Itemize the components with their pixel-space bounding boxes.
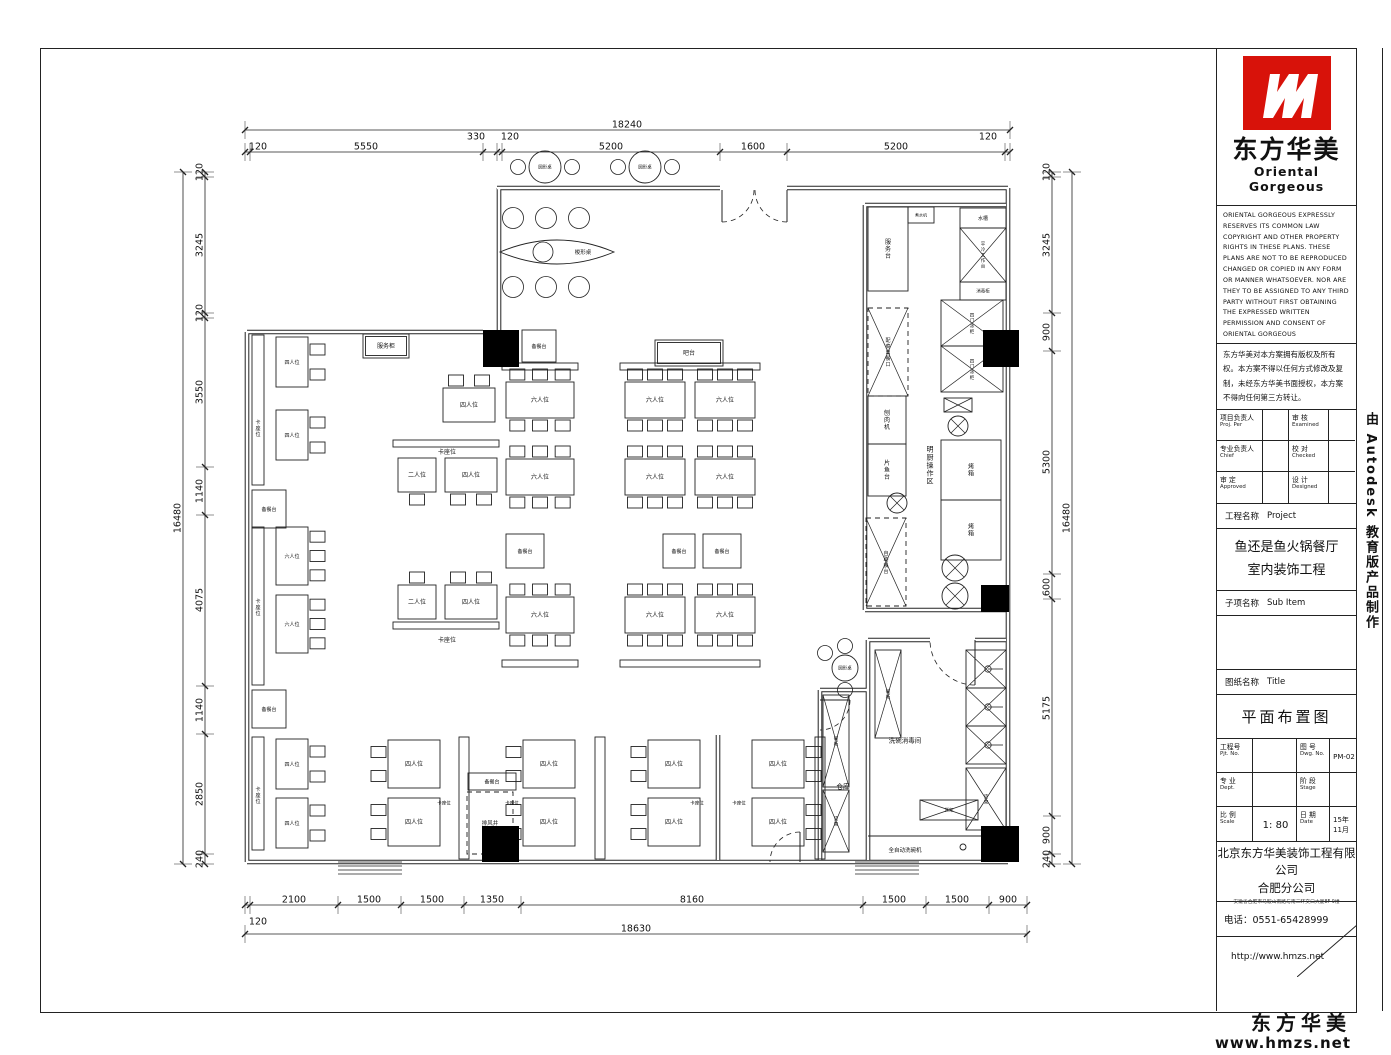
cell-date-val: 15年11月: [1330, 807, 1356, 841]
svg-text:梭形桌: 梭形桌: [575, 248, 592, 256]
personnel-table: 项目负责人Proj. Per 审 核Examined 专业负责人Chief 校 …: [1217, 410, 1356, 504]
column: [981, 585, 1009, 612]
xcirc: [942, 555, 968, 581]
cell-blank: [1329, 410, 1355, 441]
box-备餐台: 备餐台: [522, 330, 556, 362]
band: [502, 660, 578, 667]
drawing-sheet: 圆形桌圆形桌梭形桌服务柜备餐台吧台六人位六人位六人位六人位六人位六人位六人位六人…: [0, 0, 1391, 1055]
cell-dwgno: 图 号Dwg. No.: [1297, 739, 1330, 773]
svg-text:配菜出餐口: 配菜出餐口: [885, 338, 890, 368]
project-name-line1: 鱼还是鱼火锅餐厅: [1217, 537, 1356, 559]
box-片鱼台: 片鱼台: [868, 444, 906, 496]
svg-text:二人位: 二人位: [408, 598, 426, 606]
svg-text:四人位: 四人位: [284, 359, 299, 366]
cell-checked: 校 对Checked: [1289, 441, 1329, 472]
table-四人位: 四人位: [752, 798, 821, 846]
xcirc: [942, 583, 968, 609]
company-branch: 合肥分公司: [1217, 880, 1356, 896]
svg-text:四人位: 四人位: [284, 761, 299, 768]
floor-plan: 圆形桌圆形桌梭形桌服务柜备餐台吧台六人位六人位六人位六人位六人位六人位六人位六人…: [0, 0, 1391, 1055]
cell-stage-val: [1330, 773, 1356, 807]
sink: [966, 650, 1006, 688]
circ: [960, 844, 966, 850]
svg-text:备餐台: 备餐台: [531, 343, 546, 350]
table-四人位: 四人位: [371, 740, 440, 788]
svg-text:六人位: 六人位: [716, 473, 734, 481]
drawing-info-form: 工程号Pjt. No. 图 号Dwg. No. PM-02 专 业Dept. 阶…: [1217, 739, 1356, 842]
project-label-en: Project: [1267, 511, 1296, 521]
table-四人位: 四人位: [445, 458, 497, 505]
title-block: 东方华美 Oriental Gorgeous ORIENTAL GORGEOUS…: [1216, 48, 1356, 1011]
sink: [966, 726, 1006, 764]
sheet-title-label-row: 图纸名称 Title: [1217, 670, 1356, 695]
svg-text:240: 240: [194, 850, 205, 868]
xbox-货架: 货架: [966, 768, 1006, 830]
svg-text:平冷工作台: 平冷工作台: [981, 242, 986, 270]
column: [482, 826, 519, 862]
svg-text:卡座位: 卡座位: [437, 800, 451, 807]
table-六人位: 六人位: [625, 369, 685, 431]
drawing-title: 平面布置图: [1217, 695, 1356, 739]
table-六人位: 六人位: [695, 446, 755, 508]
svg-text:卡座位: 卡座位: [255, 419, 260, 438]
band: [620, 660, 760, 667]
svg-text:排风井: 排风井: [482, 819, 499, 827]
text: 卡座位: [505, 800, 519, 807]
svg-text:2850: 2850: [194, 782, 205, 806]
box-水槽: 水槽: [960, 208, 1006, 228]
svg-text:8160: 8160: [680, 894, 704, 905]
text: 卡座位: [255, 786, 260, 805]
table-二人位: 二人位: [398, 458, 436, 505]
svg-text:六人位: 六人位: [646, 473, 664, 481]
box-备餐台: 备餐台: [506, 534, 544, 568]
xcirc: [948, 416, 968, 436]
svg-text:四人位: 四人位: [284, 432, 299, 439]
svg-text:900: 900: [999, 894, 1017, 905]
box-服务台: 服务台: [868, 207, 908, 291]
subitem-label-row: 子项名称 Sub Item: [1217, 591, 1356, 616]
leaf-梭形桌: 梭形桌: [500, 208, 614, 298]
box-煮水机: 煮水机: [908, 207, 934, 223]
cell-dept: 专 业Dept.: [1217, 773, 1253, 807]
svg-text:六人位: 六人位: [284, 621, 299, 628]
svg-text:4075: 4075: [194, 588, 205, 612]
svg-text:四人位: 四人位: [665, 818, 683, 826]
svg-text:四门冰柜: 四门冰柜: [970, 358, 975, 381]
svg-text:四人位: 四人位: [284, 820, 299, 827]
subitem-label-en: Sub Item: [1267, 598, 1305, 608]
text: 明厨操作区: [927, 445, 934, 485]
table-六人位: 六人位: [625, 584, 685, 646]
svg-text:片鱼台: 片鱼台: [884, 459, 890, 481]
svg-text:备餐台: 备餐台: [671, 548, 686, 555]
svg-text:四人位: 四人位: [405, 818, 423, 826]
table-六人位: 六人位: [276, 527, 325, 585]
sheet-title-label-en: Title: [1267, 677, 1285, 687]
cell-chief: 专业负责人Chief: [1217, 441, 1263, 472]
column: [983, 330, 1019, 367]
table-四人位: 四人位: [445, 572, 497, 619]
svg-text:六人位: 六人位: [716, 396, 734, 404]
svg-text:四人位: 四人位: [540, 818, 558, 826]
svg-text:六人位: 六人位: [531, 473, 549, 481]
svg-text:碗柜: 碗柜: [834, 735, 839, 748]
text: 全自动洗碗机: [888, 846, 922, 854]
column: [483, 330, 519, 367]
table-四人位: 四人位: [631, 740, 700, 788]
table-六人位: 六人位: [506, 584, 574, 646]
svg-text:600: 600: [1041, 578, 1052, 596]
svg-text:货架: 货架: [834, 815, 839, 828]
svg-text:3245: 3245: [194, 233, 205, 257]
svg-text:六人位: 六人位: [284, 553, 299, 560]
svg-text:六人位: 六人位: [531, 611, 549, 619]
round-圆形桌: 圆形桌: [511, 151, 580, 183]
cell-pjtno: 工程号Pjt. No.: [1217, 739, 1253, 773]
svg-text:刨肉机: 刨肉机: [884, 409, 890, 431]
svg-text:仓库: 仓库: [837, 781, 851, 790]
svg-text:六人位: 六人位: [531, 396, 549, 404]
svg-text:3245: 3245: [1041, 233, 1052, 257]
copyright-chinese: 东方华美对本方案拥有版权及所有权。本方案不得以任何方式修改及复制，未经东方华美书…: [1217, 344, 1356, 410]
svg-text:四人位: 四人位: [405, 760, 423, 768]
box-备餐台: 备餐台: [703, 534, 741, 568]
svg-text:1500: 1500: [357, 894, 381, 905]
table-四人位: 四人位: [752, 740, 821, 788]
svg-text:16480: 16480: [1061, 503, 1072, 533]
xbox-货架: 货架: [920, 800, 978, 820]
cell-proj-per: 项目负责人Proj. Per: [1217, 410, 1263, 441]
logo-section: 东方华美 Oriental Gorgeous: [1217, 48, 1356, 206]
table-四人位: 四人位: [371, 798, 440, 846]
project-label-row: 工程名称 Project: [1217, 504, 1356, 529]
svg-text:洗碗消毒间: 洗碗消毒间: [889, 735, 922, 744]
svg-text:5200: 5200: [884, 141, 908, 152]
svg-text:四门冰柜: 四门冰柜: [970, 312, 975, 335]
cell-pjtno-val: [1253, 739, 1297, 773]
company-section: 北京东方华美装饰工程有限公司 合肥分公司 安徽省合肥市马鞍山南路与南二环交口大厦…: [1217, 842, 1356, 902]
table-四人位: 四人位: [276, 410, 325, 460]
subitem-value-empty: [1217, 616, 1356, 670]
svg-text:卡座位: 卡座位: [438, 448, 456, 456]
svg-text:120: 120: [1041, 163, 1052, 181]
svg-text:卡座位: 卡座位: [505, 800, 519, 807]
box-备餐台: 备餐台: [663, 534, 695, 568]
svg-text:圆形桌: 圆形桌: [538, 164, 552, 171]
xbox-平冷工作台: 平冷工作台: [960, 228, 1006, 282]
svg-text:900: 900: [1041, 826, 1052, 844]
svg-text:1140: 1140: [194, 698, 205, 722]
subitem-label-cn: 子项名称: [1225, 597, 1259, 609]
svg-text:消毒柜: 消毒柜: [976, 288, 990, 295]
footer-brand: 东方华美: [1051, 1012, 1351, 1034]
svg-text:烤箱: 烤箱: [968, 523, 974, 538]
svg-text:18240: 18240: [612, 119, 642, 130]
svg-text:1600: 1600: [741, 141, 765, 152]
footer-site: www.hmzs.net: [1051, 1034, 1351, 1052]
svg-text:备餐台: 备餐台: [517, 548, 532, 555]
corner-cut-line: [1297, 925, 1357, 977]
svg-text:四人位: 四人位: [540, 760, 558, 768]
svg-text:卡座位: 卡座位: [255, 786, 260, 805]
dimension-chain: 18240: [242, 119, 1013, 139]
svg-text:120: 120: [249, 141, 267, 152]
cell-dept-val: [1253, 773, 1297, 807]
dimension-chain: 16480: [172, 169, 192, 867]
brand-name-cn: 东方华美: [1217, 136, 1356, 164]
cell-blank: [1329, 441, 1355, 472]
band: [595, 737, 605, 859]
svg-text:四人位: 四人位: [460, 401, 478, 409]
cell-examined: 审 核Examined: [1289, 410, 1329, 441]
box-备餐台: 备餐台: [252, 490, 286, 528]
brand-name-en: Oriental Gorgeous: [1217, 164, 1356, 194]
text: 卡座位: [438, 636, 456, 644]
box-烤箱: 烤箱: [941, 500, 1001, 560]
company-name: 北京东方华美装饰工程有限公司: [1217, 845, 1356, 880]
svg-text:烤箱: 烤箱: [968, 463, 974, 478]
svg-text:水槽: 水槽: [978, 215, 988, 222]
text: 卡座位: [255, 598, 260, 617]
svg-text:备餐台: 备餐台: [261, 706, 276, 713]
svg-text:1500: 1500: [420, 894, 444, 905]
band: [459, 737, 469, 859]
box-烤箱: 烤箱: [941, 440, 1001, 500]
svg-text:5300: 5300: [1041, 450, 1052, 474]
svg-text:货架: 货架: [945, 807, 954, 814]
svg-text:卡座位: 卡座位: [732, 800, 746, 807]
box-服务柜: 服务柜: [363, 334, 409, 358]
svg-text:吧台: 吧台: [683, 349, 695, 357]
copyright-english: ORIENTAL GORGEOUS EXPRESSLY RESERVES ITS…: [1217, 206, 1356, 344]
svg-text:四人位: 四人位: [462, 598, 480, 606]
cell-blank: [1263, 410, 1289, 441]
autodesk-edu-banner: 由 Autodesk 教育版产品制作: [1358, 412, 1380, 872]
svg-text:120: 120: [501, 131, 519, 142]
svg-text:120: 120: [249, 916, 267, 927]
band: [393, 440, 499, 447]
table-六人位: 六人位: [506, 369, 574, 431]
box-备餐台: 备餐台: [252, 690, 286, 728]
text: 卡座位: [438, 448, 456, 456]
svg-text:900: 900: [1041, 323, 1052, 341]
svg-text:服务台: 服务台: [885, 239, 891, 260]
svg-text:圆形桌: 圆形桌: [838, 665, 852, 672]
svg-text:煮水机: 煮水机: [915, 211, 927, 217]
svg-text:全自动洗碗机: 全自动洗碗机: [888, 846, 922, 854]
xbox-自助餐台: 自助餐台: [866, 518, 906, 606]
dimension-chain: 16480: [1061, 169, 1081, 867]
text: 卡座位: [690, 800, 704, 807]
svg-text:5550: 5550: [354, 141, 378, 152]
svg-text:备餐台: 备餐台: [714, 548, 729, 555]
svg-text:120: 120: [194, 163, 205, 181]
svg-text:120: 120: [194, 304, 205, 322]
svg-text:3550: 3550: [194, 380, 205, 404]
svg-text:120: 120: [979, 131, 997, 142]
cell-date: 日 期Date: [1297, 807, 1330, 841]
website-row: http://www.hmzs.net: [1217, 937, 1356, 977]
text: 卡座位: [255, 419, 260, 438]
dimension-chain: 120324590053006005175900240: [1041, 163, 1061, 868]
sheet-title-label-cn: 图纸名称: [1225, 676, 1259, 688]
table-六人位: 六人位: [276, 595, 325, 653]
brand-logo-icon: [1239, 56, 1335, 132]
svg-text:四人位: 四人位: [462, 471, 480, 479]
dimension-chain: 18630: [242, 923, 1030, 943]
svg-text:四人位: 四人位: [769, 818, 787, 826]
table-六人位: 六人位: [625, 446, 685, 508]
band: [252, 335, 264, 485]
xbox-碗柜: 碗柜: [875, 650, 901, 738]
table-四人位: 四人位: [276, 798, 325, 848]
text: 洗碗消毒间: [889, 735, 922, 744]
dimension-chain: 120324512035501140407511402850240: [194, 163, 214, 868]
xbox-配菜出餐口: 配菜出餐口: [868, 308, 908, 396]
project-label-cn: 工程名称: [1225, 510, 1259, 522]
band: [393, 622, 499, 629]
cell-approved: 审 定Approved: [1217, 472, 1263, 503]
svg-text:备餐台: 备餐台: [261, 506, 276, 513]
svg-text:货架: 货架: [984, 793, 989, 806]
table-四人位: 四人位: [276, 337, 325, 387]
text: 卡座位: [437, 800, 451, 807]
svg-text:自助餐台: 自助餐台: [883, 550, 888, 575]
svg-text:明厨操作区: 明厨操作区: [927, 445, 934, 485]
box-刨肉机: 刨肉机: [868, 396, 906, 444]
svg-text:圆形桌: 圆形桌: [638, 164, 652, 171]
svg-text:六人位: 六人位: [646, 611, 664, 619]
table-六人位: 六人位: [695, 369, 755, 431]
svg-text:16480: 16480: [172, 503, 183, 533]
svg-text:卡座位: 卡座位: [438, 636, 456, 644]
table-六人位: 六人位: [506, 446, 574, 508]
box-消毒柜: 消毒柜: [960, 282, 1006, 300]
column: [981, 826, 1019, 862]
svg-text:5175: 5175: [1041, 696, 1052, 720]
svg-text:四人位: 四人位: [769, 760, 787, 768]
sheet-footer: 东方华美 www.hmzs.net: [1051, 1012, 1351, 1052]
svg-text:2100: 2100: [282, 894, 306, 905]
svg-text:1140: 1140: [194, 479, 205, 503]
box-吧台: 吧台: [655, 340, 723, 366]
table-六人位: 六人位: [695, 584, 755, 646]
xbox-货架: 货架: [823, 790, 849, 852]
project-name-line2: 室内装饰工程: [1217, 560, 1356, 582]
doors: [722, 190, 975, 862]
project-name: 鱼还是鱼火锅餐厅 室内装饰工程: [1217, 529, 1356, 591]
svg-text:服务柜: 服务柜: [377, 342, 395, 350]
cell-blank: [1329, 472, 1355, 503]
svg-text:1500: 1500: [945, 894, 969, 905]
svg-text:5200: 5200: [599, 141, 623, 152]
xbox: [944, 398, 972, 412]
cell-scale: 比 例Scale: [1217, 807, 1253, 841]
walls: [247, 188, 1008, 862]
cell-scale-val: 1: 80: [1253, 807, 1297, 841]
round-圆形桌: 圆形桌: [611, 151, 680, 183]
svg-text:18630: 18630: [621, 923, 651, 934]
svg-text:备餐台: 备餐台: [484, 778, 499, 785]
sink: [966, 688, 1006, 726]
svg-text:330: 330: [467, 131, 485, 142]
svg-text:六人位: 六人位: [716, 611, 734, 619]
svg-text:1500: 1500: [882, 894, 906, 905]
table-四人位: 四人位: [443, 375, 495, 422]
svg-text:卡座位: 卡座位: [690, 800, 704, 807]
svg-text:卡座位: 卡座位: [255, 598, 260, 617]
svg-text:四人位: 四人位: [665, 760, 683, 768]
svg-text:1350: 1350: [480, 894, 504, 905]
table-四人位: 四人位: [276, 739, 325, 789]
table-二人位: 二人位: [398, 572, 436, 619]
xbox-碗柜: 碗柜: [823, 695, 849, 787]
svg-text:240: 240: [1041, 850, 1052, 868]
text: 卡座位: [732, 800, 746, 807]
dimension-chain: 1205550330120520016005200120: [242, 131, 1013, 161]
svg-text:二人位: 二人位: [408, 471, 426, 479]
cell-designed: 设 计Designed: [1289, 472, 1329, 503]
cell-stage: 阶 段Stage: [1297, 773, 1330, 807]
svg-text:碗柜: 碗柜: [886, 688, 891, 701]
cell-blank: [1263, 472, 1289, 503]
cell-blank: [1263, 441, 1289, 472]
svg-text:六人位: 六人位: [646, 396, 664, 404]
text: 仓库: [837, 781, 851, 790]
cell-dwgno-val: PM-02: [1330, 739, 1356, 773]
